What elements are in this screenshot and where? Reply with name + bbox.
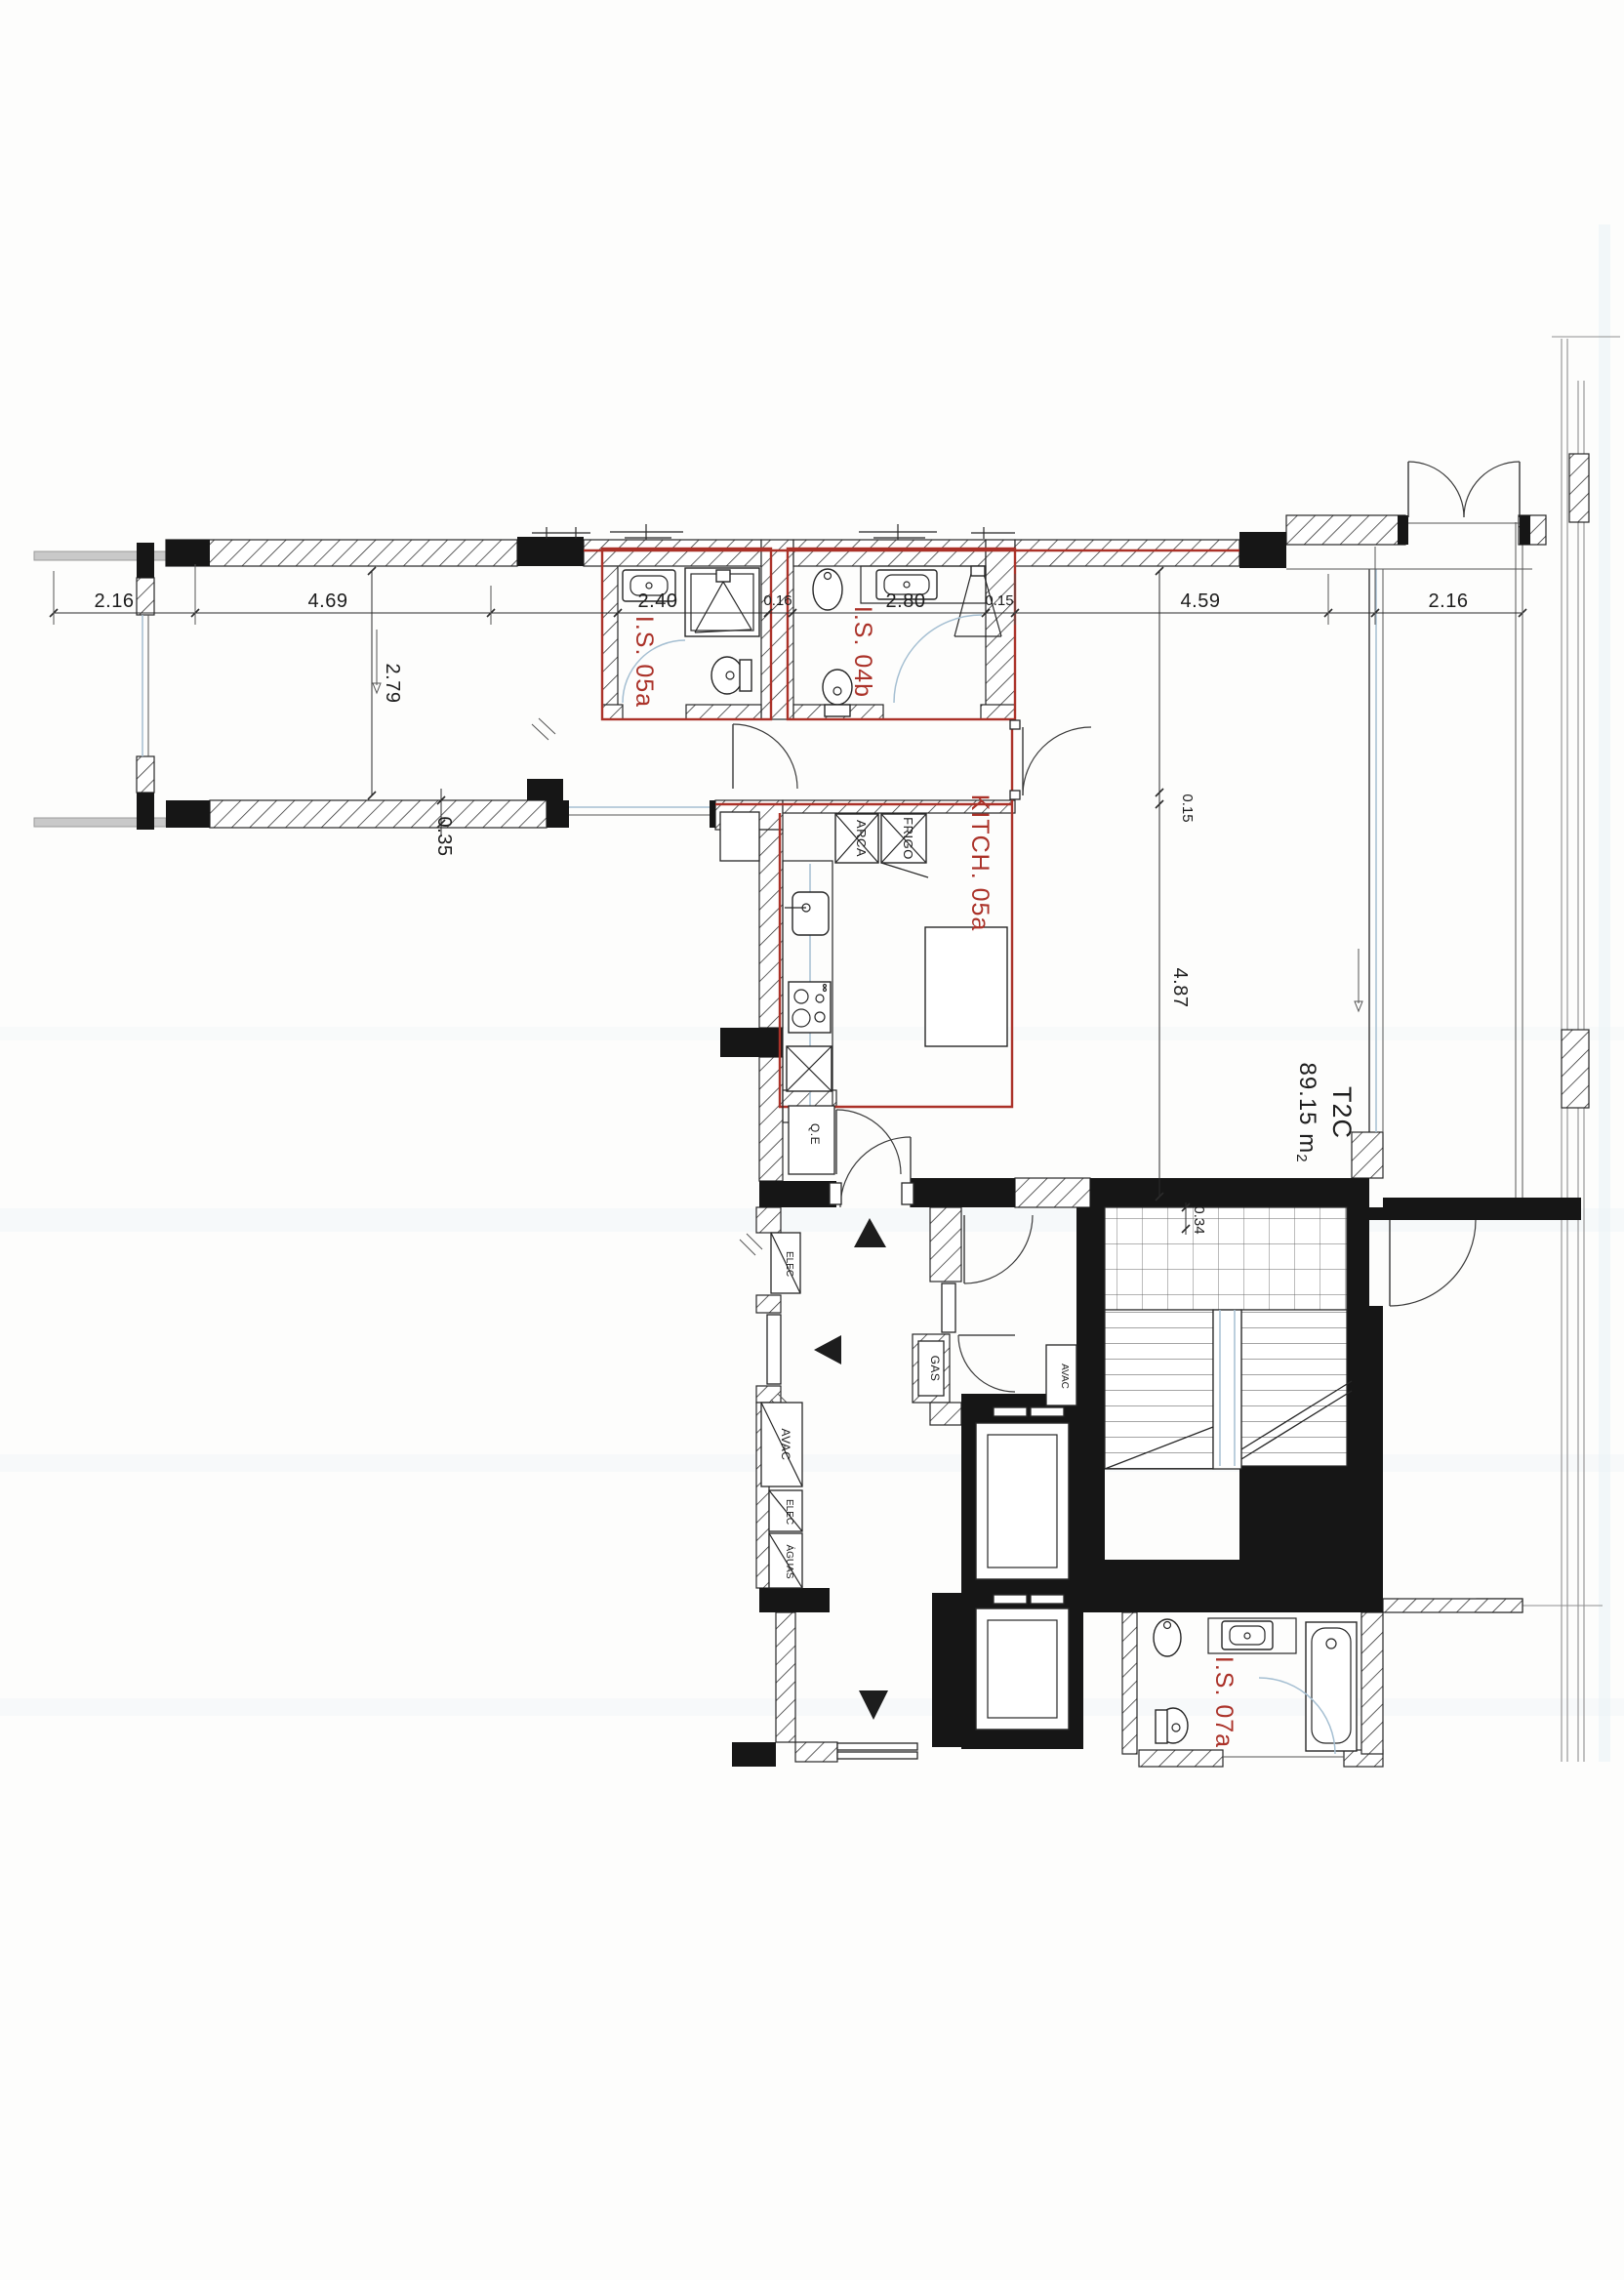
shaft-label-elec-top: ELEC: [784, 1251, 794, 1277]
shaft-label-avac-core: AVAC: [1059, 1364, 1070, 1389]
shaft-label-elec-left: ELEC: [784, 1499, 794, 1525]
dim-240: 2.40: [638, 590, 678, 612]
arrow-left: [814, 1335, 841, 1364]
dim-279: 2.79: [382, 664, 403, 704]
shaft-label-aguas: ÁGUAS: [784, 1544, 796, 1578]
small-arrow-down-left-room: [373, 630, 381, 693]
unit-area-exponent: 2: [1293, 1154, 1310, 1162]
room-label-is05a: I.S. 05a: [630, 616, 658, 708]
small-arrow-window: [1355, 949, 1362, 1011]
stairwell: [1105, 1207, 1352, 1469]
fixtures-bath-04b: [813, 566, 1001, 716]
dim-216-right: 2.16: [1429, 590, 1469, 612]
appliance-label-frigo: FRIGO: [901, 817, 915, 860]
dim-016: 0.16: [763, 592, 792, 609]
qe-closet: [789, 1106, 901, 1174]
entrance-double-door: [1398, 462, 1530, 545]
dim-216-left: 2.16: [95, 590, 135, 612]
dim-034: 0.34: [1191, 1205, 1207, 1234]
room-label-kitch: KITCH. 05a: [966, 794, 994, 932]
room-label-is07a: I.S. 07a: [1210, 1656, 1238, 1748]
dim-280: 2.80: [886, 590, 926, 612]
appliance-label-arca: ARCA: [854, 820, 869, 857]
shaft-label-gas: GAS: [928, 1356, 942, 1382]
unit-area-label: 89.15 m2: [1293, 1062, 1320, 1162]
dim-469: 4.69: [308, 590, 348, 612]
room-label-is04b: I.S. 04b: [849, 606, 876, 698]
unit-area-value: 89.15 m: [1294, 1062, 1320, 1154]
wall-fitting-symbols: [532, 524, 1015, 540]
shaft-label-avac-left: AVAC: [779, 1429, 792, 1461]
shaft-label-qe: Q.E: [808, 1123, 822, 1145]
elevators: [976, 1407, 1069, 1730]
unit-type-label: T2C: [1327, 1086, 1357, 1139]
fixtures-bath-07a: [1154, 1618, 1357, 1757]
dim-035: 0.35: [433, 817, 455, 857]
dim-015-top: 0.15: [985, 592, 1013, 609]
floor-plan-drawing: 2.16 4.69 2.79 0.35 2.40 0.16 2.80 0.15 …: [0, 0, 1624, 2280]
dim-015-right: 0.15: [1179, 794, 1196, 822]
dim-459: 4.59: [1181, 590, 1221, 612]
dim-487: 4.87: [1169, 968, 1191, 1008]
scanned-floor-plan-page: 2.16 4.69 2.79 0.35 2.40 0.16 2.80 0.15 …: [0, 0, 1624, 2280]
direction-arrows: [373, 630, 1362, 1720]
